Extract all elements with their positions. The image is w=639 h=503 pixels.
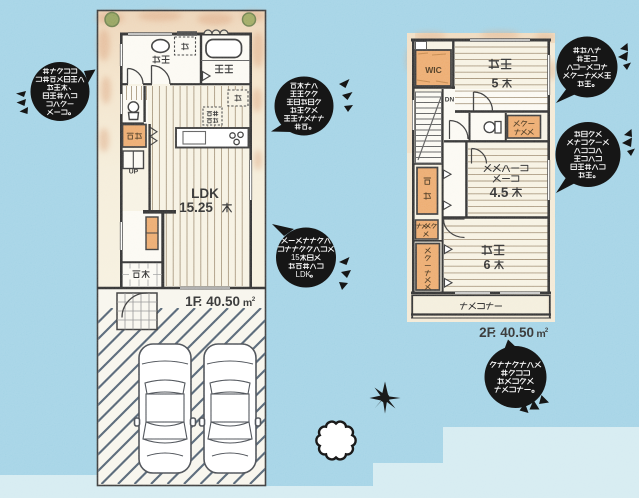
svg-text:LDK: LDK (296, 270, 312, 279)
svg-text:15: 15 (291, 253, 300, 262)
